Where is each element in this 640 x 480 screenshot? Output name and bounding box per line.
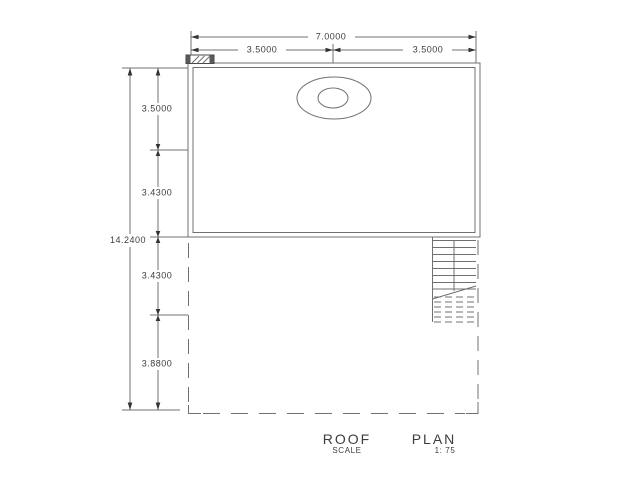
top-dimensions: 7.0000 3.5000 3.5000 <box>191 31 476 63</box>
dim-left-segment-2: 3.4300 <box>142 187 173 197</box>
lower-floor-corner <box>466 402 478 414</box>
dim-left-segment-1: 3.5000 <box>142 103 173 113</box>
chimney-end-cap <box>187 56 191 64</box>
dim-top-left-half: 3.5000 <box>247 44 278 54</box>
dim-left-segment-4: 3.8800 <box>142 358 173 368</box>
roof-outer-rect <box>188 63 480 237</box>
staircase <box>433 237 477 322</box>
title-word-roof: ROOF <box>323 431 371 447</box>
scale-value: 1: 75 <box>435 446 456 455</box>
roof-vent <box>297 77 371 119</box>
title-word-plan: PLAN <box>412 431 457 447</box>
title-block: ROOF PLAN SCALE 1: 75 <box>323 431 457 455</box>
vent-inner-ellipse <box>318 88 348 108</box>
vent-outer-ellipse <box>297 77 371 119</box>
lower-floor-corner <box>189 405 202 414</box>
scale-label: SCALE <box>332 446 361 455</box>
roof-plan-drawing: 7.0000 3.5000 3.5000 14.2400 3.5000 3.43… <box>0 0 640 480</box>
dim-left-segment-3: 3.4300 <box>142 270 173 280</box>
roof-inner-rect <box>193 68 475 233</box>
dim-top-right-half: 3.5000 <box>413 44 444 54</box>
chimney-end-cap <box>210 56 214 64</box>
dim-left-total: 14.2400 <box>110 235 146 245</box>
roof-outline <box>188 63 480 237</box>
chimney-hatched-block <box>186 55 214 64</box>
cad-drawing-svg: 7.0000 3.5000 3.5000 14.2400 3.5000 3.43… <box>0 0 640 480</box>
dim-top-total: 7.0000 <box>316 31 347 41</box>
left-dimensions: 14.2400 3.5000 3.4300 3.4300 3.8800 <box>110 68 188 410</box>
lower-floor-dashed-outline <box>189 240 479 414</box>
